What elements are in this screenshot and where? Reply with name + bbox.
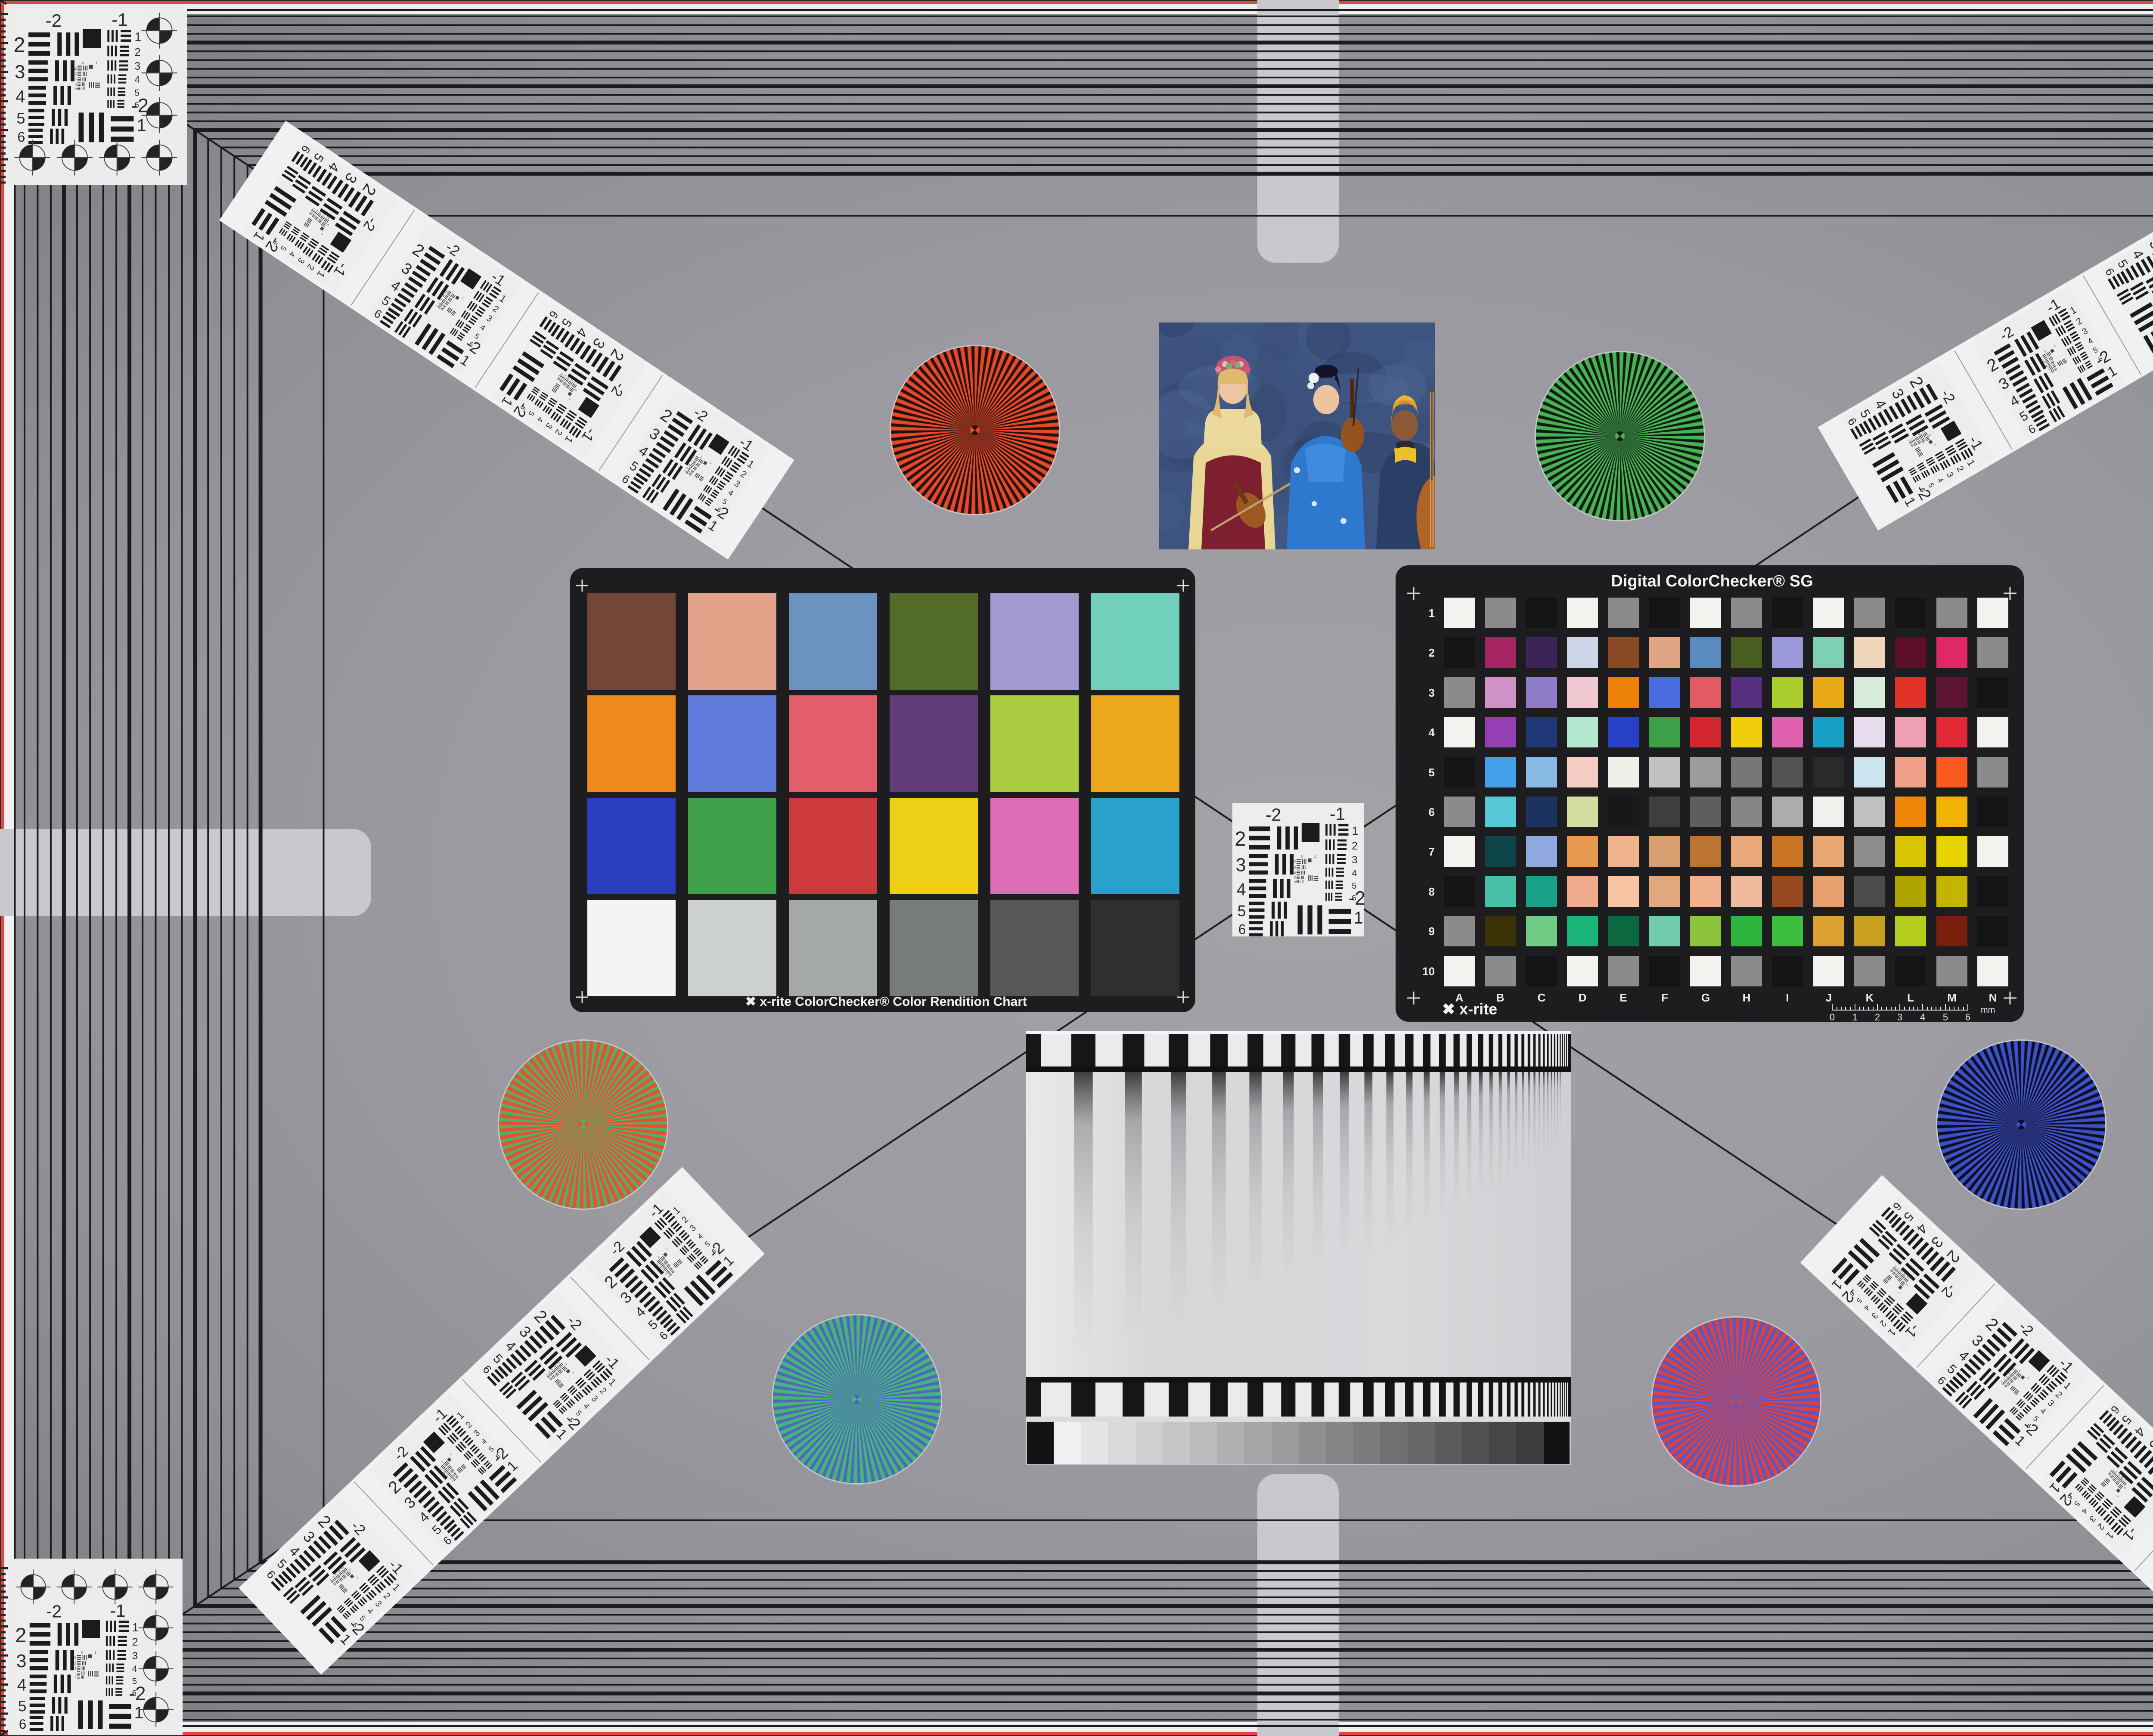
svg-text:M: M [1947,991,1957,1004]
svg-text:6: 6 [1429,806,1435,818]
svg-text:9: 9 [1429,925,1435,938]
svg-text:5: 5 [1429,766,1435,779]
svg-text:2: 2 [1429,646,1435,659]
svg-text:D: D [1579,991,1587,1004]
svg-text:L: L [1907,991,1914,1004]
svg-text:4: 4 [1429,726,1435,739]
svg-text:N: N [1989,991,1997,1004]
svg-text:7: 7 [1429,845,1435,858]
svg-text:B: B [1496,991,1505,1004]
svg-text:mm: mm [1981,1005,1995,1015]
svg-text:1: 1 [1852,1012,1858,1023]
svg-text:K: K [1866,991,1874,1004]
svg-text:G: G [1701,991,1710,1004]
svg-text:3: 3 [1897,1012,1902,1023]
svg-text:10: 10 [1422,965,1435,978]
svg-text:✖ x-rite ColorChecker® Color: ✖ x-rite ColorChecker® Color Rendition C… [745,995,1027,1009]
svg-text:E: E [1619,991,1627,1004]
svg-text:0: 0 [1830,1012,1835,1023]
svg-text:6: 6 [1965,1012,1970,1023]
svg-text:H: H [1743,991,1751,1004]
svg-text:2: 2 [1875,1012,1880,1023]
svg-text:4: 4 [1920,1012,1925,1023]
svg-text:1: 1 [1429,607,1435,620]
svg-text:F: F [1661,991,1668,1004]
svg-text:3: 3 [1429,686,1435,699]
svg-text:I: I [1786,991,1789,1004]
svg-text:Digital ColorChecker® SG: Digital ColorChecker® SG [1611,572,1813,590]
svg-text:✖ x-rite: ✖ x-rite [1442,1000,1497,1018]
svg-text:5: 5 [1943,1012,1948,1023]
svg-text:C: C [1538,991,1546,1004]
svg-text:8: 8 [1429,885,1435,898]
svg-text:J: J [1826,991,1832,1004]
